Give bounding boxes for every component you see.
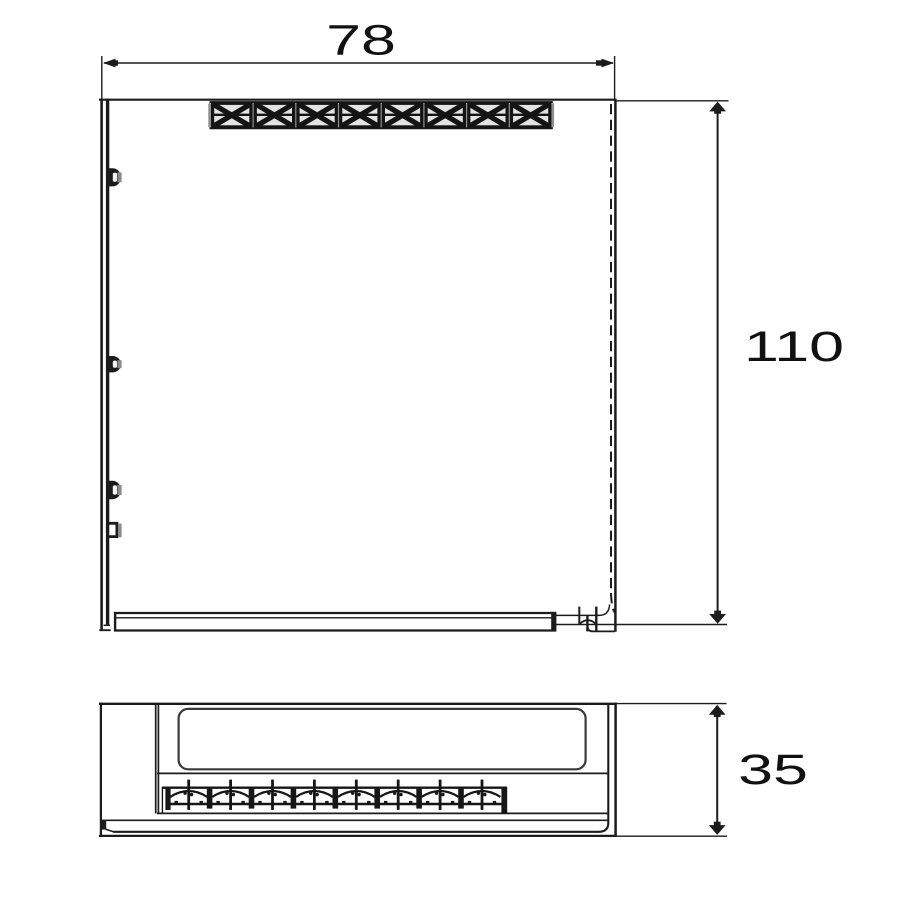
svg-text:35: 35 xyxy=(738,746,808,794)
svg-text:78: 78 xyxy=(326,16,396,64)
svg-text:110: 110 xyxy=(744,323,844,371)
